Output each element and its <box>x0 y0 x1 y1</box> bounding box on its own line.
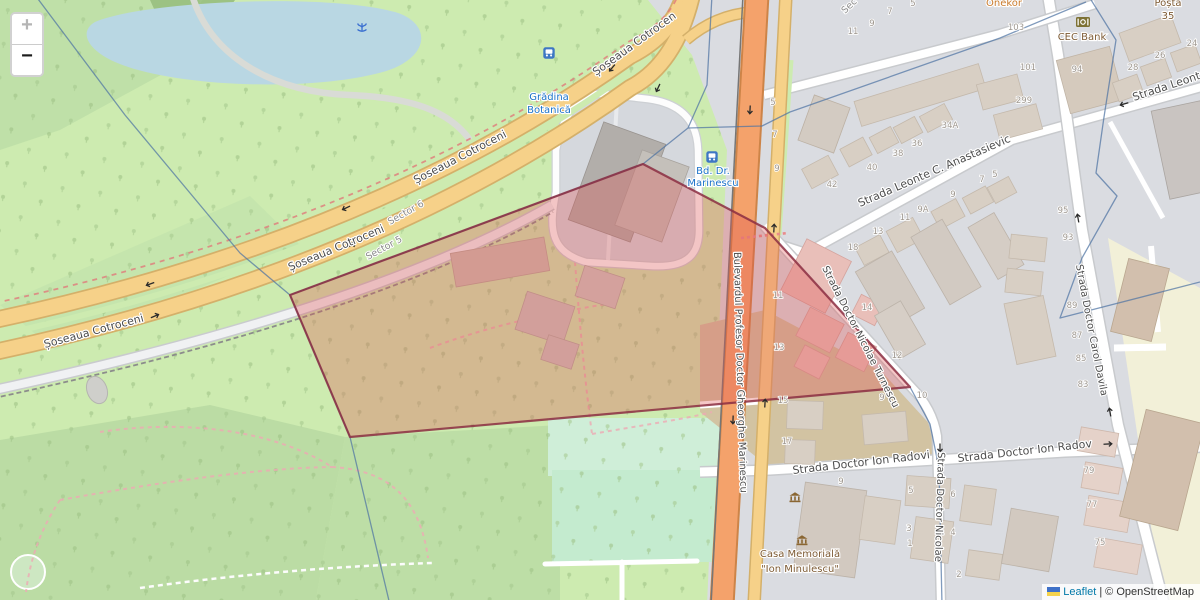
house-number: 18 <box>848 243 859 253</box>
house-number: 101 <box>1020 63 1036 73</box>
house-number: 103 <box>1008 23 1024 33</box>
house-number: 28 <box>1128 63 1139 73</box>
house-number: 12 <box>892 351 903 361</box>
house-number: 38 <box>893 149 904 159</box>
zoom-control: + − <box>10 12 44 77</box>
house-number: 9 <box>869 19 874 29</box>
house-number: 5 <box>992 170 997 180</box>
house-number: 95 <box>1058 206 1069 216</box>
house-number: 299 <box>1016 96 1032 106</box>
building <box>1002 508 1059 571</box>
house-number: 85 <box>1076 354 1087 364</box>
house-number: 11 <box>773 291 784 301</box>
house-number: 87 <box>1072 331 1083 341</box>
house-number: 34A <box>942 121 959 131</box>
house-number: 6 <box>950 490 955 500</box>
house-number: 83 <box>1078 380 1089 390</box>
house-number: 7 <box>979 175 984 185</box>
building <box>965 550 1002 580</box>
building <box>960 485 997 525</box>
svg-text:Botanică: Botanică <box>527 105 571 116</box>
house-number: 42 <box>827 180 838 190</box>
attribution-separator: | <box>1099 586 1102 598</box>
house-number: 13 <box>873 227 884 237</box>
poi-label-botanical-garden: Grădina <box>529 92 569 103</box>
building <box>1005 268 1043 296</box>
house-number: 9 <box>879 393 884 403</box>
house-number: 11 <box>900 213 911 223</box>
leaflet-link[interactable]: Leaflet <box>1063 586 1096 598</box>
house-number: 75 <box>1095 538 1106 548</box>
house-number: 79 <box>1084 466 1095 476</box>
bus-stop-icon <box>706 151 717 162</box>
house-number: 3 <box>906 524 911 534</box>
building <box>1009 234 1047 262</box>
house-number: 5 <box>908 486 913 496</box>
house-number: 4 <box>950 528 955 538</box>
house-number: 14 <box>862 303 873 313</box>
house-number: 15 <box>778 396 789 406</box>
house-number: 24 <box>1187 39 1198 49</box>
bank-icon <box>1076 17 1090 27</box>
house-number: 5 <box>770 98 775 108</box>
house-number: 9 <box>774 164 779 174</box>
house-number: 77 <box>1087 500 1098 510</box>
house-number: 11 <box>848 27 859 37</box>
building <box>910 517 953 564</box>
poi-label-cec-bank: CEC Bank <box>1058 32 1107 43</box>
house-number: 13 <box>774 343 785 353</box>
house-number: 17 <box>782 437 793 447</box>
house-number: 36 <box>912 139 923 149</box>
house-number: 93 <box>1063 233 1074 243</box>
house-number: 5 <box>910 0 915 9</box>
ukraine-flag-icon <box>1047 587 1060 596</box>
house-number: 89 <box>1067 301 1078 311</box>
zoom-out-button[interactable]: − <box>12 45 42 75</box>
osm-link[interactable]: © OpenStreetMap <box>1105 586 1194 598</box>
attribution-bar: Leaflet|© OpenStreetMap <box>1042 584 1200 600</box>
poi-label-marinescu-stop: Bd. Dr. <box>696 166 730 177</box>
house-number: 1 <box>907 539 912 549</box>
house-number: 9 <box>950 190 955 200</box>
house-number: 7 <box>887 7 892 17</box>
house-number: 2 <box>956 570 961 580</box>
building <box>859 496 901 545</box>
svg-text:"Ion Minulescu": "Ion Minulescu" <box>761 564 839 575</box>
poi-label-post-office: Poșta <box>1154 0 1181 9</box>
poi-label-memorial-house: Casa Memorială <box>760 549 840 560</box>
house-number: 7 <box>772 130 777 140</box>
svg-text:Marinescu: Marinescu <box>687 178 738 189</box>
tram-stop-icon <box>543 47 554 58</box>
house-number: 26 <box>1155 51 1166 61</box>
building <box>862 411 908 445</box>
house-number: 40 <box>867 163 878 173</box>
house-number: 9 <box>838 477 843 487</box>
svg-text:35: 35 <box>1162 11 1175 22</box>
house-number: 10 <box>917 391 928 401</box>
poi-label-shop-partial: Onekor <box>986 0 1023 9</box>
map-container[interactable]: Șoseaua Cotroceni Șoseaua Cotroceni Șose… <box>0 0 1200 600</box>
house-number: 9A <box>917 205 928 215</box>
house-number: 94 <box>1072 65 1083 75</box>
building <box>787 400 824 429</box>
map-canvas[interactable]: Șoseaua Cotroceni Șoseaua Cotroceni Șose… <box>0 0 1200 600</box>
zoom-in-button[interactable]: + <box>12 14 42 45</box>
